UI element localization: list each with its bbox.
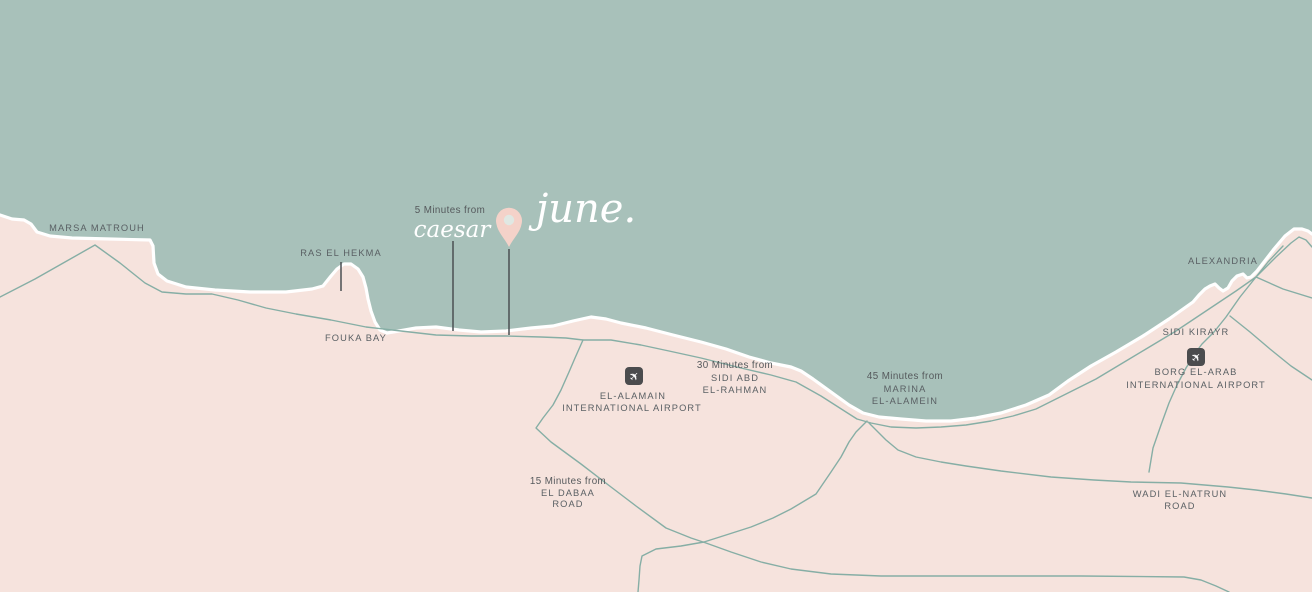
road-label-line: WADI EL-NATRUN [1133,489,1227,499]
note-line: EL DABAA [541,488,595,498]
note-line: SIDI ABD [711,373,759,383]
airport-label-line: INTERNATIONAL AIRPORT [562,403,702,413]
note-line: 30 Minutes from [697,360,773,371]
project-name: june. [528,186,636,232]
note-line: EL-ALAMEIN [872,396,938,406]
note-line: MARINA [884,384,927,394]
nearby-project-name: caesar [414,217,493,243]
airport-label-line: EL-ALAMAIN [600,391,666,401]
label-fouka-bay: FOUKA BAY [325,333,387,343]
pin-hole [504,215,514,225]
label-sidi-kirayr: SIDI KIRAYR [1163,327,1230,337]
note-line: 15 Minutes from [530,476,606,487]
road-label-line: ROAD [1164,501,1195,511]
note-line: 45 Minutes from [867,371,943,382]
note-line: EL-RAHMAN [703,385,768,395]
location-map: 5 Minutes from caesar june. MARSA MATROU… [0,0,1312,592]
label-marsa-matrouh: MARSA MATROUH [49,223,145,233]
label-ras-el-hekma: RAS EL HEKMA [300,248,382,258]
note-line: ROAD [552,499,583,509]
airport-label-line: INTERNATIONAL AIRPORT [1126,380,1266,390]
label-alexandria: ALEXANDRIA [1188,256,1258,266]
hero-distance-label: 5 Minutes from [415,205,485,216]
map-canvas: 5 Minutes from caesar june. MARSA MATROU… [0,0,1312,592]
airport-label-line: BORG EL-ARAB [1155,367,1238,377]
